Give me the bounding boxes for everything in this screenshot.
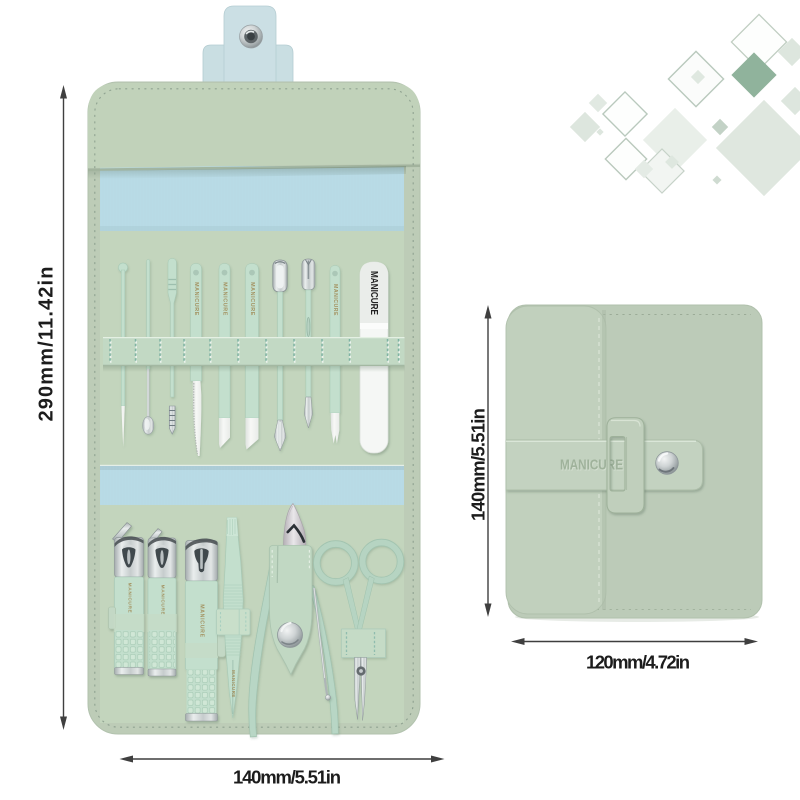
svg-text:140mm/5.51in: 140mm/5.51in xyxy=(233,767,341,788)
svg-text:MANICURE: MANICURE xyxy=(249,282,255,316)
svg-text:MANICURE: MANICURE xyxy=(368,271,380,315)
svg-text:MANICURE: MANICURE xyxy=(231,670,236,698)
svg-text:290mm/11.42in: 290mm/11.42in xyxy=(36,267,58,422)
svg-text:120mm/4.72in: 120mm/4.72in xyxy=(586,652,690,673)
svg-text:MANICURE: MANICURE xyxy=(127,583,133,614)
svg-text:MANICURE: MANICURE xyxy=(199,604,205,638)
svg-text:MANICURE: MANICURE xyxy=(160,585,166,616)
svg-text:MANICURE: MANICURE xyxy=(222,282,228,316)
svg-text:MANICURE: MANICURE xyxy=(193,282,199,316)
svg-text:140mm/5.51in: 140mm/5.51in xyxy=(468,408,489,521)
svg-text:MANICURE: MANICURE xyxy=(332,284,338,316)
svg-text:MANICURE: MANICURE xyxy=(560,457,623,474)
